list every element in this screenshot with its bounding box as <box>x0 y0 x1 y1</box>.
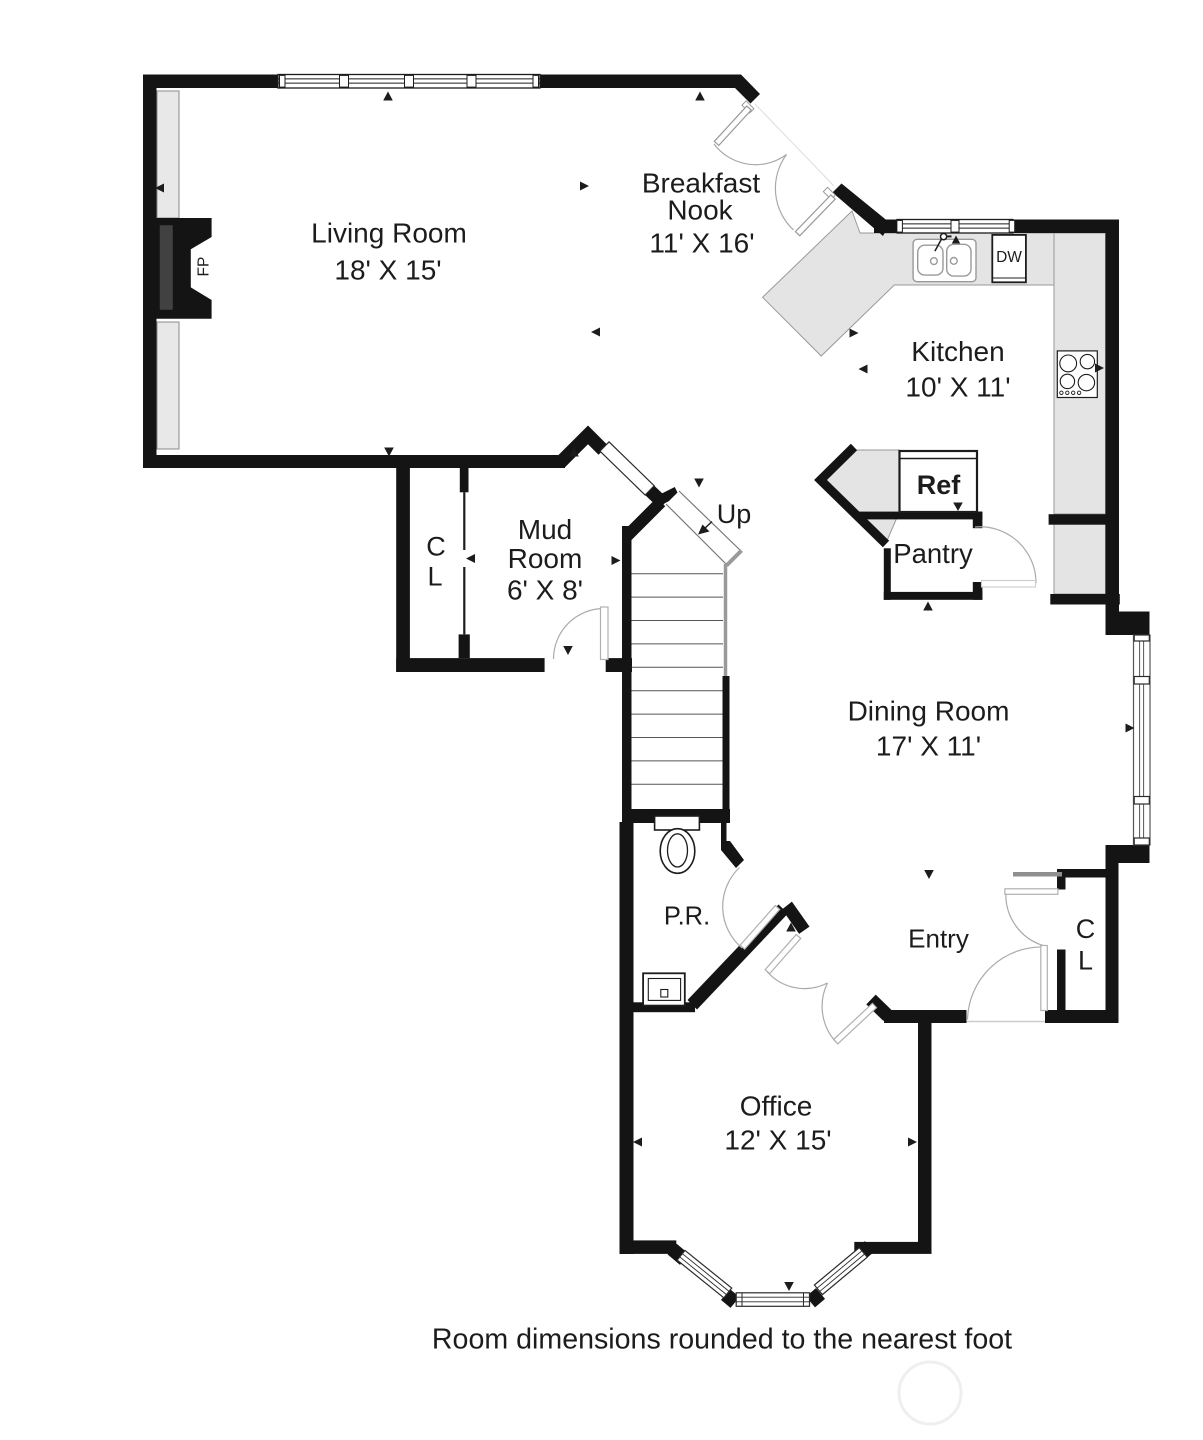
svg-text:17' X 11': 17' X 11' <box>876 731 981 762</box>
svg-text:11' X 16': 11' X 16' <box>649 228 754 259</box>
svg-text:Up: Up <box>717 499 752 529</box>
svg-text:C: C <box>426 532 446 562</box>
svg-text:Office: Office <box>740 1091 813 1122</box>
svg-text:Mud: Mud <box>518 514 572 545</box>
svg-text:Nook: Nook <box>667 195 733 226</box>
svg-text:Ref: Ref <box>917 470 962 500</box>
svg-text:DW: DW <box>996 249 1022 266</box>
svg-text:18' X 15': 18' X 15' <box>334 255 441 286</box>
svg-text:L: L <box>427 562 442 592</box>
svg-text:FP: FP <box>195 257 212 277</box>
svg-text:Dining Room: Dining Room <box>848 696 1010 727</box>
svg-text:6' X 8': 6' X 8' <box>507 575 583 606</box>
svg-text:C: C <box>1076 914 1096 944</box>
svg-text:12' X 15': 12' X 15' <box>724 1125 831 1156</box>
svg-text:10' X 11': 10' X 11' <box>905 372 1010 403</box>
svg-text:L: L <box>1078 946 1093 976</box>
svg-text:Room: Room <box>508 543 583 574</box>
svg-text:P.R.: P.R. <box>664 903 710 931</box>
svg-text:Pantry: Pantry <box>893 538 973 569</box>
svg-text:Living Room: Living Room <box>311 218 467 249</box>
svg-text:Room dimensions rounded to the: Room dimensions rounded to the nearest f… <box>432 1324 1012 1356</box>
svg-text:Entry: Entry <box>908 924 969 954</box>
svg-text:Kitchen: Kitchen <box>911 336 1004 367</box>
